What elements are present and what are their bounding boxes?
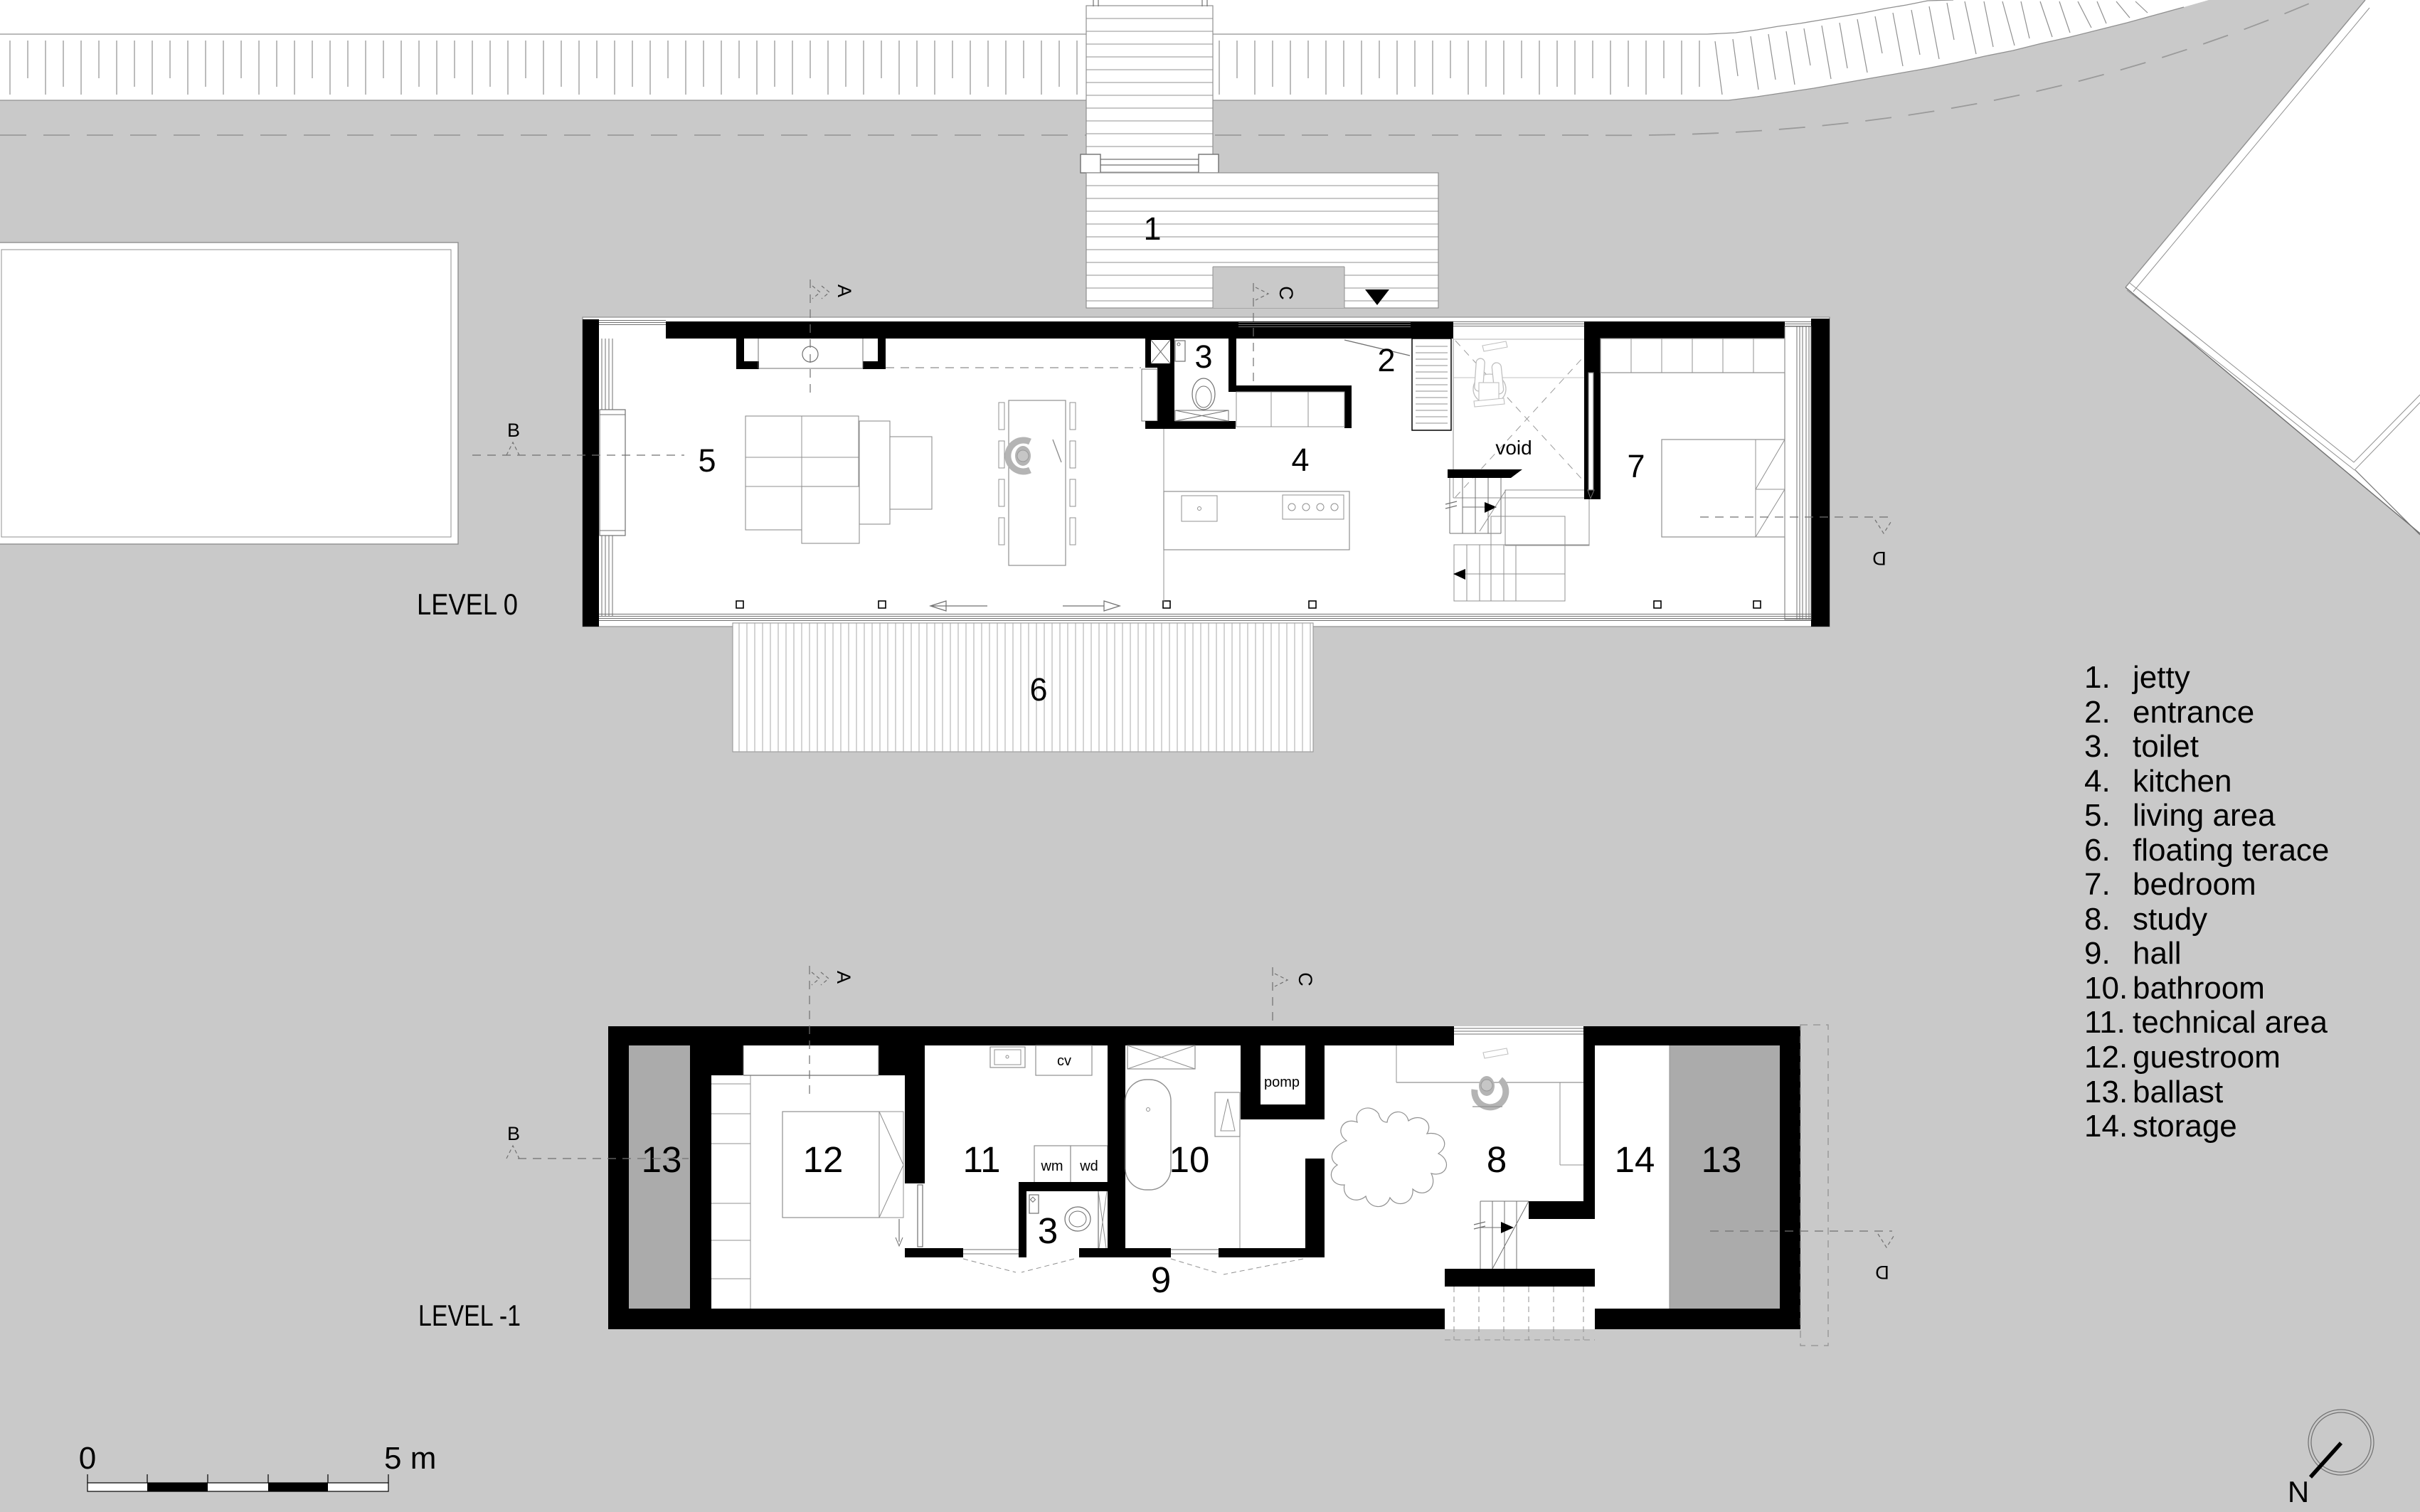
svg-text:11: 11 bbox=[963, 1139, 1001, 1180]
svg-text:LEVEL -1: LEVEL -1 bbox=[418, 1299, 521, 1332]
svg-text:toilet: toilet bbox=[2133, 729, 2199, 764]
svg-text:10: 10 bbox=[1169, 1139, 1210, 1180]
svg-text:jetty: jetty bbox=[2131, 660, 2190, 695]
svg-text:12: 12 bbox=[803, 1139, 844, 1180]
svg-text:A: A bbox=[834, 284, 855, 297]
svg-text:3: 3 bbox=[1038, 1210, 1058, 1251]
svg-text:kitchen: kitchen bbox=[2133, 764, 2231, 799]
svg-text:storage: storage bbox=[2133, 1109, 2237, 1144]
svg-text:C: C bbox=[1295, 972, 1316, 986]
svg-text:12.: 12. bbox=[2084, 1040, 2128, 1075]
svg-text:5 m: 5 m bbox=[384, 1441, 436, 1476]
svg-text:14: 14 bbox=[1615, 1139, 1655, 1180]
svg-text:0: 0 bbox=[79, 1441, 96, 1476]
svg-text:N: N bbox=[2288, 1475, 2309, 1508]
svg-text:4.: 4. bbox=[2084, 764, 2111, 799]
svg-text:9.: 9. bbox=[2084, 936, 2111, 971]
svg-text:2: 2 bbox=[1377, 342, 1395, 378]
svg-text:hall: hall bbox=[2133, 936, 2182, 971]
svg-text:8.: 8. bbox=[2084, 902, 2111, 937]
svg-text:LEVEL 0: LEVEL 0 bbox=[417, 587, 518, 621]
svg-text:5: 5 bbox=[698, 442, 716, 479]
svg-text:void: void bbox=[1495, 437, 1532, 459]
svg-text:B: B bbox=[507, 420, 520, 441]
svg-text:13: 13 bbox=[1702, 1139, 1742, 1180]
svg-text:D: D bbox=[1872, 548, 1886, 569]
svg-text:10.: 10. bbox=[2084, 971, 2128, 1006]
svg-text:technical area: technical area bbox=[2133, 1005, 2328, 1040]
svg-text:living area: living area bbox=[2133, 798, 2276, 833]
svg-text:bathroom: bathroom bbox=[2133, 971, 2265, 1006]
svg-text:11.: 11. bbox=[2084, 1005, 2126, 1040]
svg-text:13: 13 bbox=[642, 1139, 682, 1180]
svg-text:3.: 3. bbox=[2084, 729, 2111, 764]
svg-text:bedroom: bedroom bbox=[2133, 867, 2256, 902]
svg-text:13.: 13. bbox=[2084, 1075, 2128, 1109]
svg-text:1: 1 bbox=[1143, 211, 1161, 247]
svg-text:9: 9 bbox=[1151, 1260, 1171, 1300]
svg-text:entrance: entrance bbox=[2133, 695, 2254, 730]
svg-text:wm: wm bbox=[1040, 1159, 1063, 1174]
svg-text:C: C bbox=[1275, 286, 1297, 300]
svg-text:7.: 7. bbox=[2084, 867, 2111, 902]
svg-text:A: A bbox=[833, 971, 854, 984]
svg-text:14.: 14. bbox=[2084, 1109, 2128, 1144]
svg-text:4: 4 bbox=[1291, 442, 1309, 478]
svg-text:pomp: pomp bbox=[1264, 1075, 1300, 1090]
svg-text:D: D bbox=[1875, 1262, 1889, 1283]
svg-text:cv: cv bbox=[1057, 1053, 1071, 1069]
svg-text:7: 7 bbox=[1627, 448, 1645, 484]
svg-text:1.: 1. bbox=[2084, 660, 2111, 695]
svg-text:ballast: ballast bbox=[2133, 1075, 2223, 1109]
svg-text:wd: wd bbox=[1079, 1159, 1098, 1174]
svg-text:floating terace: floating terace bbox=[2133, 833, 2329, 868]
svg-text:3: 3 bbox=[1194, 339, 1212, 375]
svg-text:5.: 5. bbox=[2084, 798, 2111, 833]
svg-text:6.: 6. bbox=[2084, 833, 2111, 868]
svg-text:2.: 2. bbox=[2084, 695, 2111, 730]
svg-text:guestroom: guestroom bbox=[2133, 1040, 2281, 1075]
svg-text:6: 6 bbox=[1029, 671, 1047, 708]
svg-text:8: 8 bbox=[1487, 1139, 1507, 1180]
svg-text:B: B bbox=[507, 1123, 520, 1144]
svg-text:study: study bbox=[2133, 902, 2207, 937]
